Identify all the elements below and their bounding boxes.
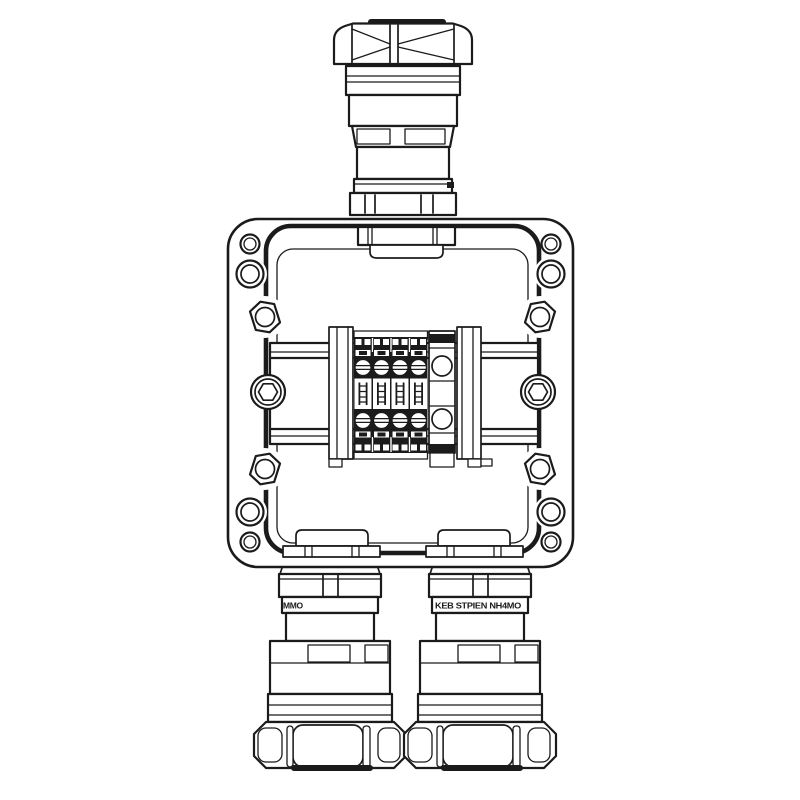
terminal-assembly [329,327,492,467]
gland-bottom-cap-left [291,765,373,771]
gland-locknut [350,193,456,215]
gland-marking-right: KEB STPIEN NH4MO [435,601,522,611]
terminal-end-stop-left [329,327,353,467]
gland-marking-left: MMO [283,601,304,611]
terminal-end-block [429,331,455,467]
bottom-cable-gland-left: MMO [254,568,406,771]
terminal-blocks [354,331,428,459]
enclosure [228,219,573,567]
gland-bottom-cap-right [441,765,523,771]
bottom-cable-gland-right: KEB STPIEN NH4MO [404,568,556,771]
top-cable-gland [334,19,472,215]
gland-index-mark [447,182,454,188]
figure-canvas: MMO KEB STPIEN NH4MO [0,0,800,800]
junction-box-drawing: MMO KEB STPIEN NH4MO [0,0,800,800]
top-entry-bushing [358,227,455,258]
